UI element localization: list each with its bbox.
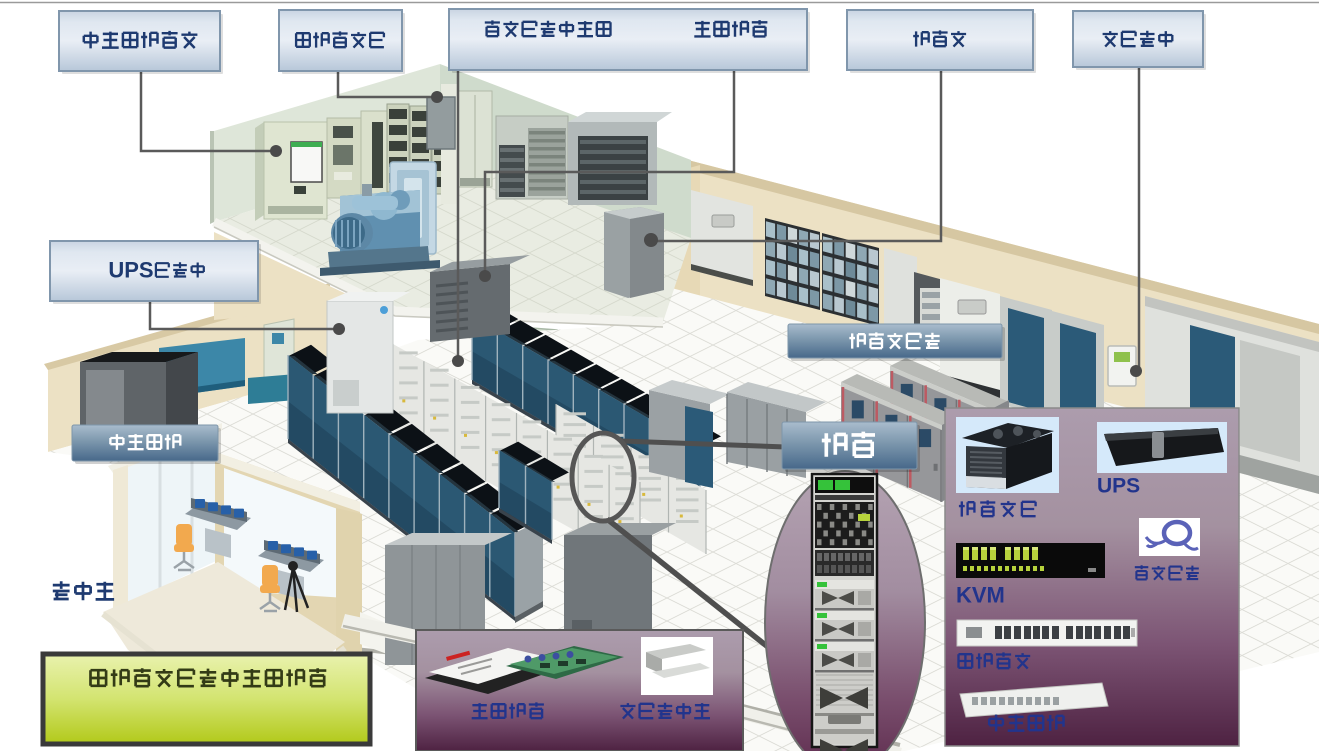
svg-text:KVM: KVM — [956, 583, 1005, 608]
svg-text:UPS: UPS — [108, 258, 153, 283]
svg-text:UPS: UPS — [1097, 475, 1140, 498]
